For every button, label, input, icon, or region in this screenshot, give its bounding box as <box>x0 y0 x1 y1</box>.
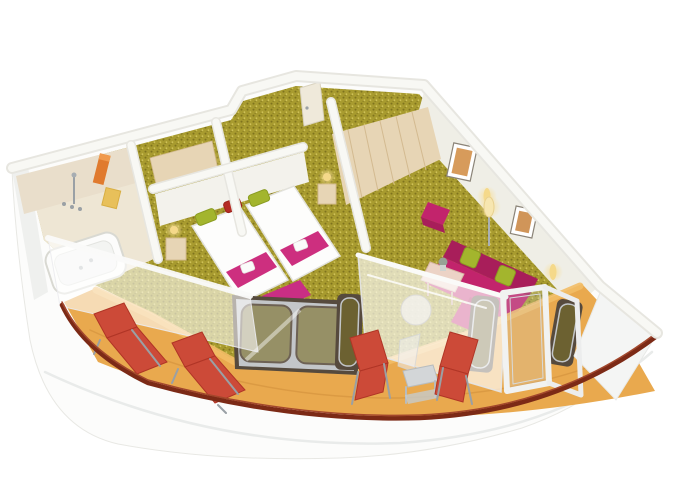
bedside-table-right <box>318 168 336 204</box>
wall-lamp-2 <box>543 262 563 282</box>
floorplan-canvas <box>0 0 680 486</box>
door-handle <box>305 106 308 109</box>
round-balcony-table <box>401 295 431 325</box>
entry-door <box>300 82 324 126</box>
suite-floorplan-rendering <box>0 0 680 486</box>
